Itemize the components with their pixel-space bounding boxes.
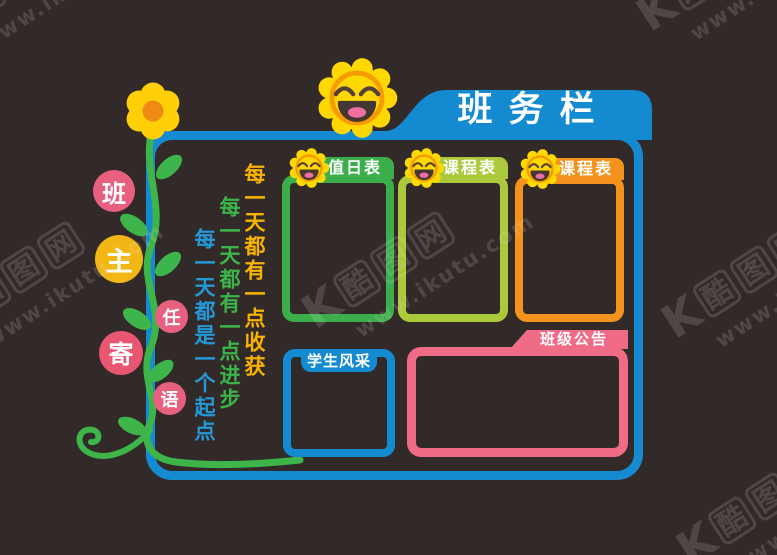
panel-student-showcase-label: 学生风采 <box>301 351 377 372</box>
watermark-url: www.ikutu.com <box>726 446 777 555</box>
watermark: K酷图网 www.ikutu.com <box>669 402 777 555</box>
panel-duty-roster <box>282 175 394 322</box>
watermark-char: 酷 <box>0 0 9 23</box>
page-title: 班务栏 <box>400 88 652 132</box>
badge-char: 语 <box>161 386 179 412</box>
badge-zhu: 主 <box>95 235 143 283</box>
watermark-char: 图 <box>727 243 777 296</box>
watermark-char: 酷 <box>690 267 744 320</box>
bulletin-board-poster: 班务栏 班 主 任 寄 语 每一天都有一点收获 每一天都有一点进步 每一天都是 <box>0 0 777 555</box>
badge-yu: 语 <box>153 382 186 415</box>
watermark-url: www.ikutu.com <box>0 0 164 55</box>
watermark: K酷图网 www.ikutu.com <box>0 0 164 74</box>
watermark-char: 酷 <box>665 0 719 13</box>
watermark-url: www.ikutu.com <box>686 0 777 45</box>
watermark-logo: K <box>629 0 684 39</box>
watermark-logo: K <box>669 515 724 555</box>
flower-icon <box>127 83 180 140</box>
panel-course-schedule-1 <box>398 175 508 322</box>
sun-smiley-icon <box>516 145 564 193</box>
badge-char: 主 <box>106 240 133 279</box>
watermark-url: www.ikutu.com <box>711 219 777 353</box>
motto-startingpoint: 每一天都是一个起点 <box>192 228 215 444</box>
watermark-char: 图 <box>742 470 777 523</box>
motto-progress: 每一天都有一点进步 <box>217 196 240 412</box>
vine-leaves-icon <box>30 80 320 480</box>
panel-class-announcements <box>407 347 628 457</box>
watermark-logo: K <box>654 288 709 346</box>
watermark-char: 酷 <box>0 267 14 320</box>
watermark: K酷图网 www.ikutu.com <box>629 0 777 64</box>
badge-ji: 寄 <box>99 331 143 375</box>
badge-ren: 任 <box>155 300 188 333</box>
badge-char: 寄 <box>108 335 133 371</box>
motto-harvest: 每一天都有一点收获 <box>242 163 265 379</box>
badge-char: 班 <box>102 174 126 209</box>
panel-course-schedule-2 <box>515 176 624 322</box>
watermark: K酷图网 www.ikutu.com <box>654 175 777 371</box>
watermark-char: 网 <box>764 219 777 272</box>
watermark-char: 酷 <box>705 494 759 547</box>
badge-ban: 班 <box>93 170 135 212</box>
badge-char: 任 <box>163 304 181 330</box>
sun-smiley-icon <box>309 50 405 146</box>
sun-smiley-icon <box>400 144 448 192</box>
panel-class-announcements-label: 班级公告 <box>510 330 628 349</box>
sun-smiley-icon <box>285 144 333 192</box>
